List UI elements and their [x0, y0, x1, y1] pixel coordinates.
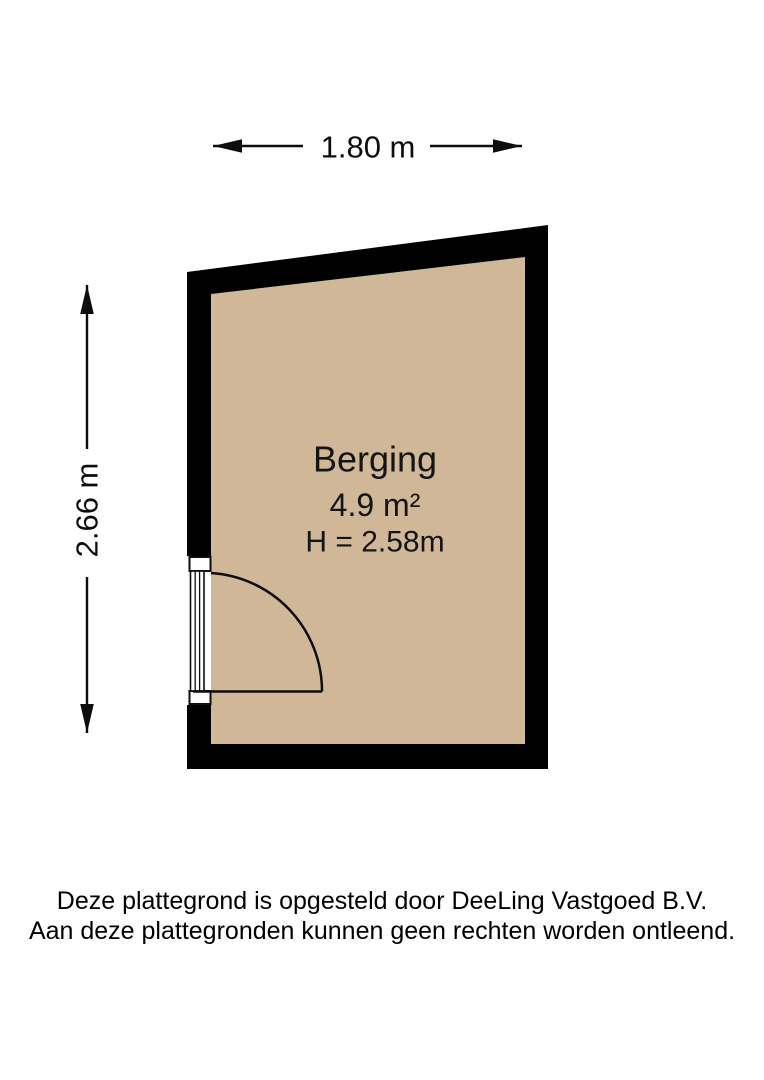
footer-disclaimer: Deze plattegrond is opgesteld door DeeLi…	[0, 887, 764, 946]
room-ceiling-height-label: H = 2.58m	[305, 526, 444, 559]
floorplan-svg: 1.80 m 2.66 m Berging 4.9 m² H = 2.58m	[0, 0, 764, 860]
door-threshold-bottom	[190, 691, 211, 704]
width-dimension-label: 1.80 m	[321, 130, 416, 165]
door-frame	[191, 571, 205, 691]
footer-line-1: Deze plattegrond is opgesteld door DeeLi…	[0, 887, 764, 917]
arrowhead-up-icon	[80, 285, 94, 314]
footer-line-2: Aan deze plattegronden kunnen geen recht…	[0, 917, 764, 947]
height-dimension-arrow: 2.66 m	[68, 285, 106, 733]
room-area-label: 4.9 m²	[330, 487, 421, 523]
door-threshold-top	[190, 557, 211, 571]
arrowhead-right-icon	[493, 139, 522, 153]
room-name-label: Berging	[313, 439, 437, 480]
height-dimension-label: 2.66 m	[70, 463, 105, 558]
floorplan-page: 1.80 m 2.66 m Berging 4.9 m² H = 2.58m	[0, 0, 764, 1080]
width-dimension-arrow: 1.80 m	[213, 127, 522, 165]
arrowhead-down-icon	[80, 704, 94, 733]
arrowhead-left-icon	[213, 139, 242, 153]
